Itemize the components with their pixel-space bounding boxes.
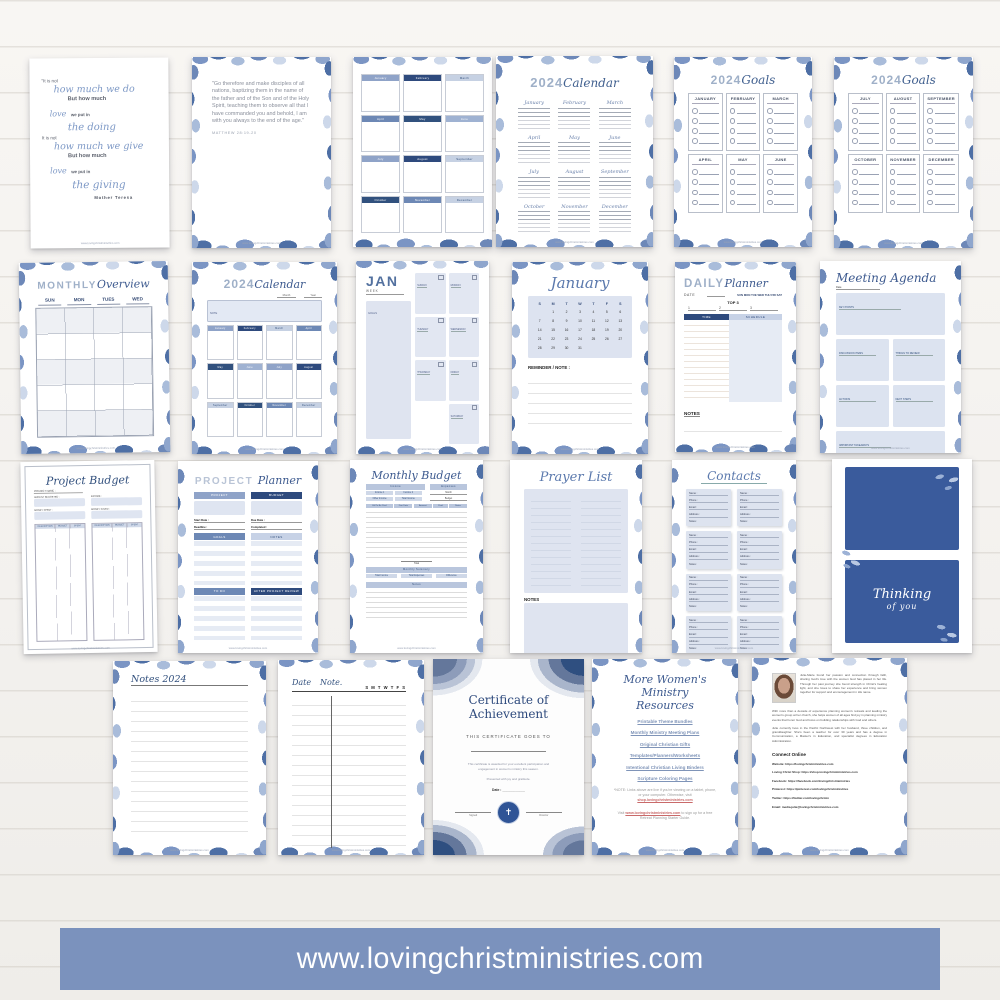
goal-month-name: JUNE bbox=[767, 157, 794, 165]
goal-month-box: OCTOBER bbox=[848, 154, 883, 212]
month-box: August bbox=[296, 363, 323, 398]
date-cell: 2 bbox=[560, 308, 573, 317]
bills-rows bbox=[366, 508, 467, 560]
weekday-label: M bbox=[546, 302, 559, 306]
quote-line: the giving bbox=[72, 179, 159, 192]
goal-month-box: APRIL bbox=[688, 154, 723, 212]
date-cell: 24 bbox=[573, 335, 586, 344]
month-box-body bbox=[362, 81, 399, 110]
budget-table: DESCRIPTION BUDGET SPENT bbox=[34, 523, 87, 642]
page-footer-url: www.lovingchristministries.com bbox=[350, 646, 483, 650]
page-footer-url: www.lovingchristministries.com bbox=[192, 241, 331, 245]
prayer-columns bbox=[524, 489, 628, 593]
mini-month: April bbox=[518, 135, 550, 164]
goal-row bbox=[730, 108, 757, 114]
prayer-lines bbox=[581, 495, 621, 587]
certificate-title: Certificate ofAchievement bbox=[455, 693, 562, 721]
goal-month-box: SEPTEMBER bbox=[923, 93, 959, 151]
mini-month-name: May bbox=[558, 135, 590, 141]
page-meeting-agenda: Meeting Agenda Date KEY POINTS DISCUSSIO… bbox=[820, 261, 961, 453]
month-box-body bbox=[446, 81, 483, 110]
page-footer-url: www.lovingchristministries.com bbox=[834, 241, 973, 245]
date-cell: 11 bbox=[587, 317, 600, 326]
bills-header: Bill To Be Paid Due Date Amount Paid Not… bbox=[366, 504, 467, 508]
month-box-body bbox=[362, 122, 399, 151]
date-cell: 5 bbox=[600, 308, 613, 317]
budget-table: DESCRIPTION BUDGET SPENT bbox=[91, 522, 144, 641]
weekday-label: MON bbox=[67, 296, 90, 305]
month-box: March bbox=[266, 325, 293, 360]
quote-line: It is not bbox=[42, 135, 159, 141]
note-lines bbox=[131, 692, 248, 838]
scripture-reference: MATTHEW 28:19-20 bbox=[212, 131, 311, 135]
mini-month-grid: JanuaryFebruaryMarchAprilMayJuneJulyAugu… bbox=[518, 100, 631, 232]
header-bars: PROJECT BUDGET bbox=[194, 492, 302, 515]
page-jan-weekly-planner: JAN WEEK GOALS SUNDAY MONDAY TUESDAY WED… bbox=[356, 261, 489, 454]
product-mockup-canvas: { "banner": {"text": "www.lovingchristmi… bbox=[0, 0, 1000, 1000]
notes-label: NOTES bbox=[684, 411, 700, 417]
goal-month-box: MARCH bbox=[763, 93, 798, 151]
month-box-body bbox=[238, 370, 263, 398]
income-row-label: Income 1 bbox=[366, 491, 393, 495]
day-box: SATURDAY bbox=[449, 404, 479, 445]
month-box-body bbox=[404, 203, 441, 232]
contact-card: Name : Phone : Email : Address : Notes : bbox=[686, 531, 731, 568]
date-cell: 29 bbox=[546, 344, 559, 353]
month-box-body bbox=[404, 162, 441, 191]
month-box: December bbox=[296, 402, 323, 437]
month-box-body bbox=[267, 331, 292, 359]
contact-field: Email : bbox=[689, 591, 728, 596]
contact-field: Address : bbox=[740, 513, 779, 518]
goal-month-box: AUGUST bbox=[886, 93, 921, 151]
contact-field: Email : bbox=[689, 506, 728, 511]
certificate-body: This certificate is awarded for your exc… bbox=[466, 762, 552, 771]
quote-line: love we put in bbox=[50, 103, 159, 122]
goals-box: GOALS bbox=[366, 301, 411, 439]
page-title: Notes 2024 bbox=[131, 674, 187, 685]
mini-month-dates bbox=[518, 142, 550, 163]
contact-field: Name : bbox=[740, 534, 779, 539]
page-2024-year-calendar: 2024Calendar JanuaryFebruaryMarchAprilMa… bbox=[496, 56, 653, 247]
day-box: TUESDAY bbox=[415, 317, 445, 358]
date-cell: 28 bbox=[533, 344, 546, 353]
month-grid: JanuaryFebruaryMarchAprilMayJuneJulyAugu… bbox=[361, 74, 484, 233]
month-box: July bbox=[266, 363, 293, 398]
quote-line: how much we give bbox=[54, 141, 159, 153]
empty-slot bbox=[415, 404, 445, 445]
date-cell: 25 bbox=[587, 335, 600, 344]
field-project-name: PROJECT NAME : bbox=[34, 489, 83, 494]
goal-row bbox=[692, 169, 719, 175]
month-box: June bbox=[445, 115, 484, 153]
page-title: Monthly Budget bbox=[366, 469, 467, 482]
contact-field: Name : bbox=[740, 619, 779, 624]
note-box: NOTE bbox=[207, 300, 322, 322]
mini-month-name: July bbox=[518, 169, 550, 175]
month-box: October bbox=[361, 196, 400, 234]
month-box: June bbox=[237, 363, 264, 398]
agenda-box: KEY POINTS bbox=[836, 293, 945, 335]
quote-line: But how much bbox=[68, 96, 159, 103]
month-box-body bbox=[362, 203, 399, 232]
note-paragraph: *NOTE: Links above are live if you're vi… bbox=[612, 788, 718, 804]
goal-month-box: MAY bbox=[726, 154, 761, 212]
contact-card: Name : Phone : Email : Address : Notes : bbox=[686, 489, 731, 526]
contact-field: Phone : bbox=[740, 499, 779, 504]
month-box: May bbox=[207, 363, 234, 398]
page-about-author: Julie-Marie found her passion and connec… bbox=[752, 658, 907, 855]
mini-month-dates bbox=[518, 108, 550, 129]
weekday-label: W bbox=[573, 302, 586, 306]
page-daily-planner: DAILYPlanner DATE SUN MON TUE WED THU FR… bbox=[675, 262, 796, 452]
mini-month-name: February bbox=[558, 100, 590, 106]
page-project-budget: Project Budget PROJECT NAME : AMOUNT BUD… bbox=[20, 460, 157, 654]
quote-author: Mother Teresa bbox=[94, 195, 159, 200]
page-title: 2024Goals bbox=[848, 71, 959, 89]
goal-month-box: JANUARY bbox=[688, 93, 723, 151]
leaf-decoration bbox=[928, 618, 966, 648]
month-box: September bbox=[445, 155, 484, 193]
notes-header: Notes 2024 bbox=[131, 674, 248, 686]
mini-month: May bbox=[558, 135, 590, 164]
income-expense-section: Income Income 1Income 2Other IncomeTotal… bbox=[366, 484, 467, 501]
note-lines bbox=[292, 696, 406, 848]
mini-month: January bbox=[518, 100, 550, 129]
top3-row: 1 2 3 bbox=[684, 306, 782, 311]
page-title: 2024Goals bbox=[688, 71, 798, 89]
page-2024-monthly-calendar: 2024Calendar Month Year NOTE JanuaryFebr… bbox=[192, 262, 337, 454]
contact-field: Name : bbox=[689, 619, 728, 624]
visit-paragraph: Visit www.lovingchristministries.com to … bbox=[612, 811, 718, 822]
month-abbrev: JAN bbox=[366, 273, 411, 289]
jan-left-column: JAN WEEK GOALS bbox=[366, 273, 411, 444]
month-box: January bbox=[361, 74, 400, 112]
page-title: PROJECT Planner bbox=[194, 471, 302, 489]
date-grid: 1234567891011121314151617181920212223242… bbox=[533, 308, 627, 353]
month-box: July bbox=[361, 155, 400, 193]
date-cell: 3 bbox=[573, 308, 586, 317]
agenda-row: ACTIONS NEXT STEPS bbox=[836, 385, 945, 427]
goal-month-box: JUNE bbox=[763, 154, 798, 212]
shop-link[interactable]: shop.lovingchristministries.com bbox=[637, 798, 692, 802]
resource-link[interactable]: Scripture Coloring Pages bbox=[612, 776, 718, 781]
weekday-header-row: SMTWTFS bbox=[533, 302, 627, 306]
mini-month: November bbox=[558, 204, 590, 233]
month-box-body bbox=[404, 122, 441, 151]
summary-cols: Total Income Total Expenses Difference bbox=[366, 574, 467, 578]
month-box-body bbox=[404, 81, 441, 110]
schedule-body bbox=[684, 320, 782, 402]
page-monthly-budget: Monthly Budget Income Income 1Income 2Ot… bbox=[350, 460, 483, 653]
weekday-initials: S M T W T F S bbox=[365, 685, 406, 690]
date-cell: 8 bbox=[546, 317, 559, 326]
weekday-label: S bbox=[533, 302, 546, 306]
field-row: MONEY SPENT : MONEY SAVED : bbox=[34, 507, 142, 520]
mini-month-name: September bbox=[599, 169, 631, 175]
goals-grid: JANUARYFEBRUARYMARCHAPRILMAYJUNE bbox=[688, 93, 798, 213]
contact-field: Email : bbox=[689, 633, 728, 638]
schedule-area bbox=[729, 320, 782, 402]
contact-field: Notes : bbox=[740, 520, 779, 524]
date-cell: 30 bbox=[560, 344, 573, 353]
quote-line: love we put in bbox=[50, 160, 159, 179]
connect-line[interactable]: Website: https://lovingchristministries.… bbox=[772, 762, 887, 766]
contact-field: Email : bbox=[740, 591, 779, 596]
website-banner: www.lovingchristministries.com bbox=[60, 928, 940, 990]
bio-paragraph: Julie currently lives in the Pacific Nor… bbox=[772, 726, 887, 743]
page-footer-url: www.lovingchristministries.com bbox=[512, 447, 648, 451]
date-cell: 1 bbox=[546, 308, 559, 317]
page-footer-url: www.lovingchristministries.com bbox=[496, 240, 653, 244]
date-cell: 19 bbox=[600, 326, 613, 335]
page-certificate: Certificate ofAchievement THIS CERTIFICA… bbox=[433, 659, 584, 855]
date-cell: 20 bbox=[614, 326, 627, 335]
date-fields: Deadline : Completed : bbox=[194, 525, 302, 530]
contact-card: Name : Phone : Email : Address : Notes : bbox=[686, 574, 731, 611]
goal-month-name: SEPTEMBER bbox=[927, 96, 955, 104]
page-thinking-of-you-card: Thinking of you bbox=[832, 459, 972, 653]
contact-field: Phone : bbox=[689, 541, 728, 546]
date-cell bbox=[600, 344, 613, 353]
page-footer-url: www.lovingchristministries.com bbox=[820, 446, 961, 450]
mini-month-name: April bbox=[518, 135, 550, 141]
quote-line: But how much bbox=[68, 153, 159, 160]
day-box: MONDAY bbox=[449, 273, 479, 314]
mini-month-name: November bbox=[558, 204, 590, 210]
bills-total: Total bbox=[401, 561, 431, 565]
field-row: AMOUNT BUDGETED : INCOME : bbox=[34, 494, 142, 507]
notes-lines bbox=[366, 588, 467, 618]
site-link[interactable]: www.lovingchristministries.com bbox=[625, 811, 680, 815]
prayer-lines bbox=[531, 495, 571, 587]
author-photo bbox=[772, 673, 796, 703]
goal-month-box: FEBRUARY bbox=[726, 93, 761, 151]
contact-field: Phone : bbox=[689, 626, 728, 631]
goal-row bbox=[767, 108, 794, 114]
resource-link[interactable]: Templates/Planners/Worksheets bbox=[612, 753, 718, 758]
month-box-body bbox=[267, 408, 292, 436]
month-box-body bbox=[238, 408, 263, 436]
agenda-box: NEXT STEPS bbox=[893, 385, 946, 427]
page-title: DAILYPlanner bbox=[684, 274, 782, 292]
contact-field: Name : bbox=[740, 576, 779, 581]
goal-month-name: DECEMBER bbox=[927, 157, 955, 165]
contact-field: Name : bbox=[689, 576, 728, 581]
date-row: DATE SUN MON TUE WED THU FRI SAT bbox=[684, 293, 782, 297]
time-rows bbox=[684, 320, 729, 402]
budget-tables: DESCRIPTION BUDGET SPENT DESCRIPTION BUD… bbox=[34, 522, 144, 642]
income-rows: Income 1Income 2Other IncomeTotal Income bbox=[366, 491, 425, 501]
resource-link[interactable]: Original Christian Gifts bbox=[612, 742, 718, 747]
resource-link[interactable]: Monthly Ministry Meeting Plans bbox=[612, 730, 718, 735]
notes-box bbox=[524, 603, 628, 653]
reminder-label: REMINDER / NOTE : bbox=[528, 365, 632, 370]
note-column-label: Note. bbox=[320, 678, 342, 687]
month-box: October bbox=[237, 402, 264, 437]
presented-line: Presented with joy and gratitude. bbox=[455, 777, 562, 781]
page-footer-url: www.lovingchristministries.com bbox=[113, 848, 266, 852]
page-prayer-list: Prayer List NOTES bbox=[510, 460, 642, 653]
month-box: September bbox=[207, 402, 234, 437]
goal-month-name: JULY bbox=[852, 96, 879, 104]
connect-line[interactable]: Pinterest: https://pinterest.com/lovingc… bbox=[772, 787, 887, 791]
income-row-label: Other Income bbox=[366, 497, 393, 501]
contact-field: Phone : bbox=[740, 541, 779, 546]
contact-field: Address : bbox=[689, 598, 728, 603]
contact-field: Phone : bbox=[740, 583, 779, 588]
resource-link[interactable]: Printable Theme Bundles bbox=[612, 719, 718, 724]
page-title: Project Budget bbox=[34, 473, 142, 488]
contact-field: Address : bbox=[740, 598, 779, 603]
mini-month: March bbox=[599, 100, 631, 129]
connect-line[interactable]: Twitter: https://twitter.com/lovingchrmi… bbox=[772, 796, 887, 800]
weekday-label: WED bbox=[126, 295, 149, 304]
contact-field: Email : bbox=[689, 548, 728, 553]
page-monthly-overview: MONTHLYOverview SUNMONTUESWED www.loving… bbox=[19, 261, 171, 454]
date-line: Date : ____________ bbox=[455, 788, 562, 792]
date-cell: 21 bbox=[533, 335, 546, 344]
contact-cards-grid: Name : Phone : Email : Address : Notes :… bbox=[686, 489, 782, 653]
mini-month: July bbox=[518, 169, 550, 198]
summary-bar: Monthly Summary bbox=[366, 567, 467, 573]
goal-month-name: JANUARY bbox=[692, 96, 719, 104]
date-cell: 12 bbox=[600, 317, 613, 326]
contact-field: Email : bbox=[740, 548, 779, 553]
weekday-label: SUN bbox=[38, 296, 61, 305]
contact-field: Name : bbox=[689, 534, 728, 539]
contact-field: Address : bbox=[689, 513, 728, 518]
month-box: February bbox=[237, 325, 264, 360]
date-cell bbox=[587, 344, 600, 353]
agenda-box: DISCUSSION ITEMS bbox=[836, 339, 889, 381]
mini-month-name: March bbox=[599, 100, 631, 106]
goal-month-box: NOVEMBER bbox=[886, 154, 921, 212]
contact-field: Notes : bbox=[740, 563, 779, 567]
month-box: April bbox=[296, 325, 323, 360]
date-cell: 14 bbox=[533, 326, 546, 335]
page-mother-teresa-quote: "It is not how much we do But how much l… bbox=[29, 58, 169, 249]
weekday-label: T bbox=[587, 302, 600, 306]
weekday-label: S bbox=[614, 302, 627, 306]
date-cell: 27 bbox=[614, 335, 627, 344]
mini-month-dates bbox=[558, 108, 590, 129]
page-date-note: Date Note. S M T W T F S www.lovingchris… bbox=[278, 660, 424, 855]
month-box-body bbox=[208, 370, 233, 398]
connect-line[interactable]: Email: media.julie@lovingchristministrie… bbox=[772, 805, 887, 809]
page-title: MONTHLYOverview bbox=[35, 274, 152, 294]
weekday-label: TUES bbox=[97, 296, 120, 305]
contact-field: Phone : bbox=[689, 583, 728, 588]
resource-link[interactable]: Intentional Christian Living Binders bbox=[612, 765, 718, 770]
date-cell: 18 bbox=[587, 326, 600, 335]
month-box: April bbox=[361, 115, 400, 153]
mini-month-dates bbox=[558, 177, 590, 198]
goal-month-name: FEBRUARY bbox=[730, 96, 757, 104]
page-2024-goals-first-half: 2024Goals JANUARYFEBRUARYMARCHAPRILMAYJU… bbox=[674, 57, 812, 247]
date-cell: 31 bbox=[573, 344, 586, 353]
mini-month: September bbox=[599, 169, 631, 198]
mini-month-dates bbox=[558, 211, 590, 232]
date-fields: Start Date : Due Date : bbox=[194, 518, 302, 523]
date-cell: 13 bbox=[614, 317, 627, 326]
date-cell: 10 bbox=[573, 317, 586, 326]
page-scripture-matthew: "Go therefore and make disciples of all … bbox=[192, 57, 331, 248]
mini-month: October bbox=[518, 204, 550, 233]
month-box: December bbox=[445, 196, 484, 234]
weekday-header-row: SUNMONTUESWED bbox=[35, 295, 152, 305]
goal-row bbox=[730, 169, 757, 175]
mini-month: December bbox=[599, 204, 631, 233]
mini-month-dates bbox=[599, 177, 631, 198]
mini-month-name: December bbox=[599, 204, 631, 210]
month-box: January bbox=[207, 325, 234, 360]
contact-field: Email : bbox=[740, 633, 779, 638]
month-box: February bbox=[403, 74, 442, 112]
contact-card: Name : Phone : Email : Address : Notes : bbox=[737, 531, 782, 568]
page-project-planner: PROJECT Planner PROJECT BUDGET Start Dat… bbox=[178, 461, 318, 653]
goal-month-name: MAY bbox=[730, 157, 757, 165]
mini-month-dates bbox=[518, 177, 550, 198]
day-boxes-grid: SUNDAY MONDAY TUESDAY WEDNESDAY THURSDAY… bbox=[415, 273, 479, 444]
contact-field: Address : bbox=[740, 555, 779, 560]
notes-lines bbox=[684, 422, 782, 440]
week-label: WEEK bbox=[366, 289, 404, 295]
resource-links: Printable Theme BundlesMonthly Ministry … bbox=[612, 719, 718, 782]
quote-line: "It is not bbox=[41, 78, 158, 84]
contact-field: Phone : bbox=[689, 499, 728, 504]
page-2024-goals-second-half: 2024Goals JULYAUGUSTSEPTEMBEROCTOBERNOVE… bbox=[834, 57, 973, 248]
mini-month-dates bbox=[599, 211, 631, 232]
page-contacts: Contacts Name : Phone : Email : Address … bbox=[672, 460, 796, 653]
date-cell: 26 bbox=[600, 335, 613, 344]
contact-field: Phone : bbox=[740, 626, 779, 631]
goals-grid: JULYAUGUSTSEPTEMBEROCTOBERNOVEMBERDECEMB… bbox=[848, 93, 959, 213]
month-box-body bbox=[208, 408, 233, 436]
month-box-body bbox=[362, 162, 399, 191]
connect-line[interactable]: Loving Christ Shop: https://shop.lovingc… bbox=[772, 770, 887, 774]
contact-field: Notes : bbox=[740, 605, 779, 609]
mini-month-name: January bbox=[518, 100, 550, 106]
date-cell: 23 bbox=[560, 335, 573, 344]
day-box: FRIDAY bbox=[449, 360, 479, 401]
date-cell: 4 bbox=[587, 308, 600, 317]
contact-card: Name : Phone : Email : Address : Notes : bbox=[737, 574, 782, 611]
notes-label: NOTES bbox=[524, 597, 628, 602]
page-title: 2024Calendar bbox=[207, 275, 322, 293]
contact-field: Email : bbox=[740, 506, 779, 511]
connect-line[interactable]: Facebook: https://facebook.com/lovingchr… bbox=[772, 779, 887, 783]
page-notes-2024: Notes 2024 www.lovingchristministries.co… bbox=[113, 661, 266, 855]
month-year-fields: Month Year bbox=[207, 293, 322, 298]
scripture-text: "Go therefore and make disciples of all … bbox=[212, 81, 311, 125]
bio-paragraph: With more than a decade of experience pl… bbox=[772, 709, 887, 722]
month-box-body bbox=[238, 331, 263, 359]
website-url[interactable]: www.lovingchristministries.com bbox=[296, 942, 703, 976]
name-line bbox=[471, 751, 546, 752]
goal-month-name: NOVEMBER bbox=[890, 157, 917, 165]
calendar-block: SMTWTFS 12345678910111213141516171819202… bbox=[528, 296, 632, 358]
month-box: May bbox=[403, 115, 442, 153]
page-title: Meeting Agenda bbox=[836, 271, 945, 285]
goal-row bbox=[692, 108, 719, 114]
top3-label: TOP 3 bbox=[684, 300, 782, 305]
agenda-box: ACTIONS bbox=[836, 385, 889, 427]
income-row-label: Total Income bbox=[395, 497, 422, 501]
page-ministry-resources: More Women'sMinistry Resources Printable… bbox=[592, 659, 738, 855]
page-footer-url: www.lovingchristministries.com bbox=[674, 240, 812, 244]
datenote-body bbox=[292, 696, 406, 848]
